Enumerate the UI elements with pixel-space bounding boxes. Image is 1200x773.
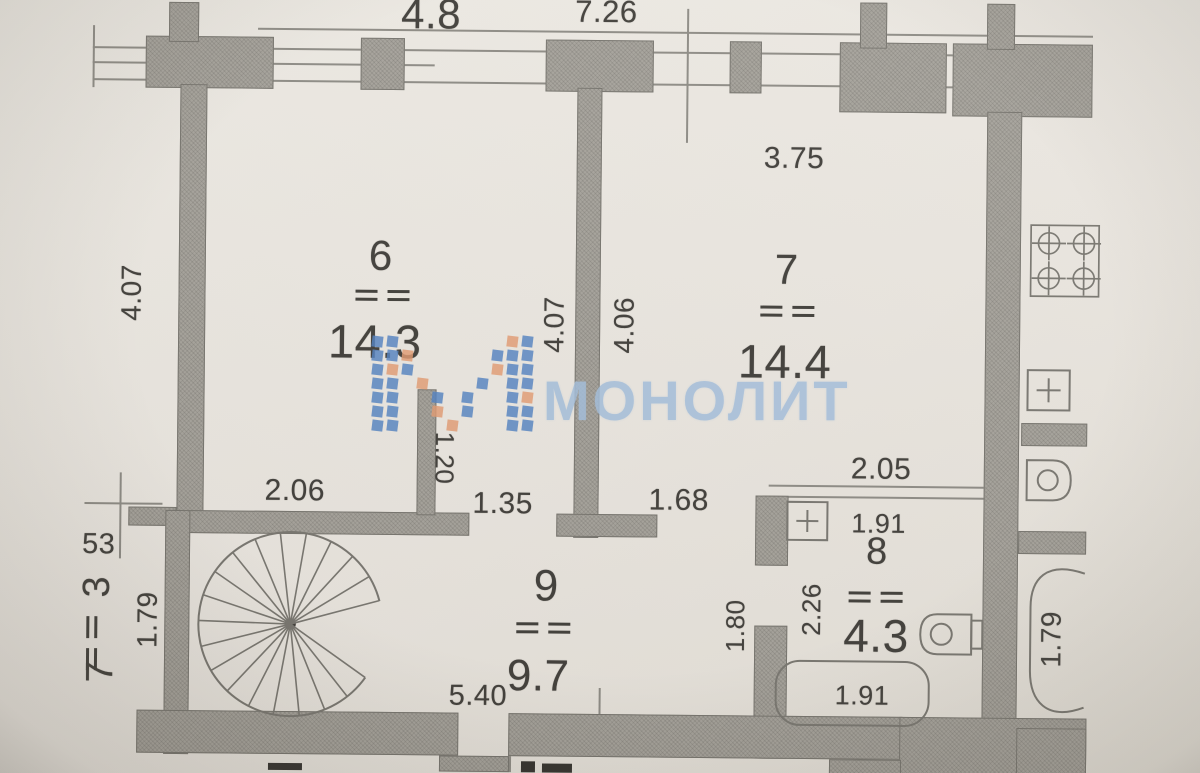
watermark-text: МОНОЛИТ — [543, 368, 851, 433]
floorplan-photo: 6 14.3 7 14.4 8 4.3 9 9.7 3 7 4.8 7.26 3… — [0, 0, 1200, 773]
